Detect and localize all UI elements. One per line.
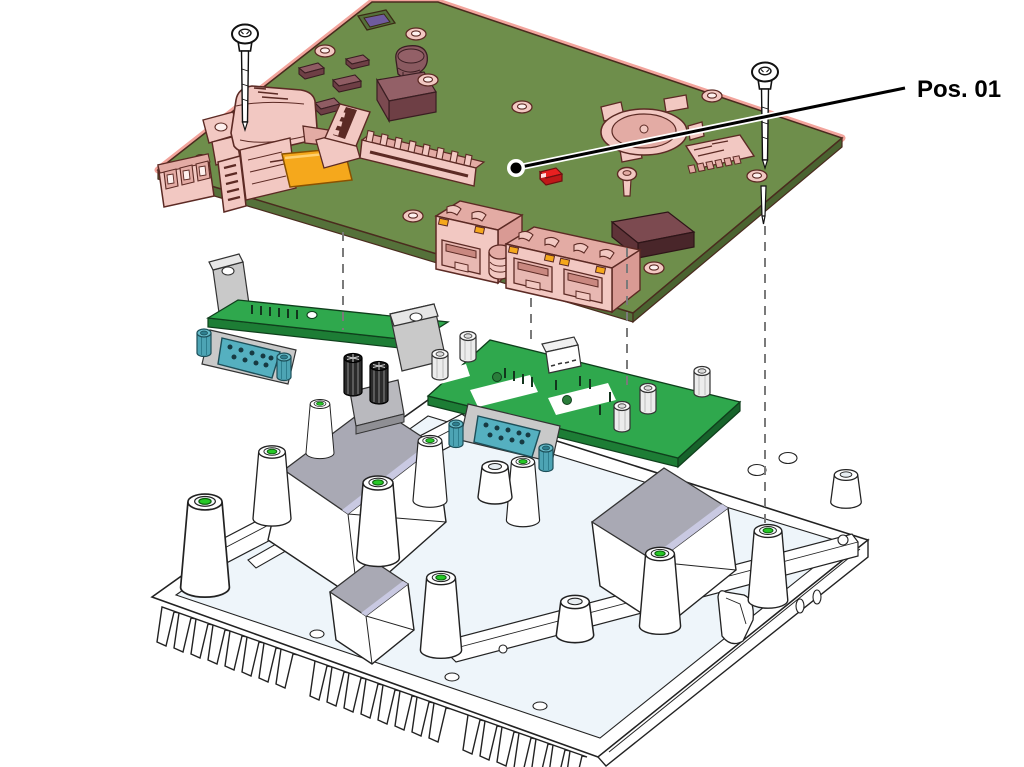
hex-standoff: [614, 402, 630, 433]
grommet: [406, 28, 426, 40]
grommet: [403, 210, 423, 222]
grommet: [644, 262, 664, 274]
callout-dot: [511, 163, 522, 174]
standoff-boss: [639, 547, 680, 634]
boss-stub: [556, 595, 593, 642]
db9-connector-left: [197, 329, 296, 384]
db9-screw-post: [539, 444, 553, 472]
boss-stub: [478, 461, 512, 504]
standoff-boss: [748, 525, 788, 609]
standoff-boss: [181, 494, 230, 597]
main-board: [158, 2, 842, 322]
hex-standoff: [432, 350, 448, 381]
standoff-boss: [413, 435, 447, 507]
standoff-boss: [357, 476, 400, 566]
standoff-boss: [420, 571, 461, 658]
grommet: [315, 45, 335, 57]
cap-component: [493, 373, 502, 382]
pcb-hole: [307, 312, 317, 319]
standoff-boss: [306, 399, 334, 458]
db9-screw-post: [449, 420, 463, 448]
grommet: [702, 90, 722, 102]
hex-standoff: [694, 367, 710, 398]
diagram-canvas: Pos. 01: [0, 0, 1024, 767]
exploded-view-diagram: Pos. 01: [0, 0, 1024, 767]
heatsink-base: [152, 399, 868, 767]
hex-standoff: [460, 332, 476, 363]
cap-component: [563, 396, 572, 405]
db9-screw-post: [277, 353, 291, 381]
db9-screw-post: [197, 329, 211, 357]
callout-label: Pos. 01: [917, 76, 1001, 103]
standoff-boss: [253, 446, 291, 526]
hex-standoff: [344, 354, 362, 397]
header-connector-white: [542, 337, 581, 373]
hex-standoff: [640, 384, 656, 415]
grommet: [418, 74, 438, 86]
screw-shaft-below-board: [761, 186, 766, 224]
boss-stub: [831, 470, 862, 509]
grommet: [512, 101, 532, 113]
hex-standoff: [370, 362, 388, 405]
grommet: [747, 170, 767, 182]
